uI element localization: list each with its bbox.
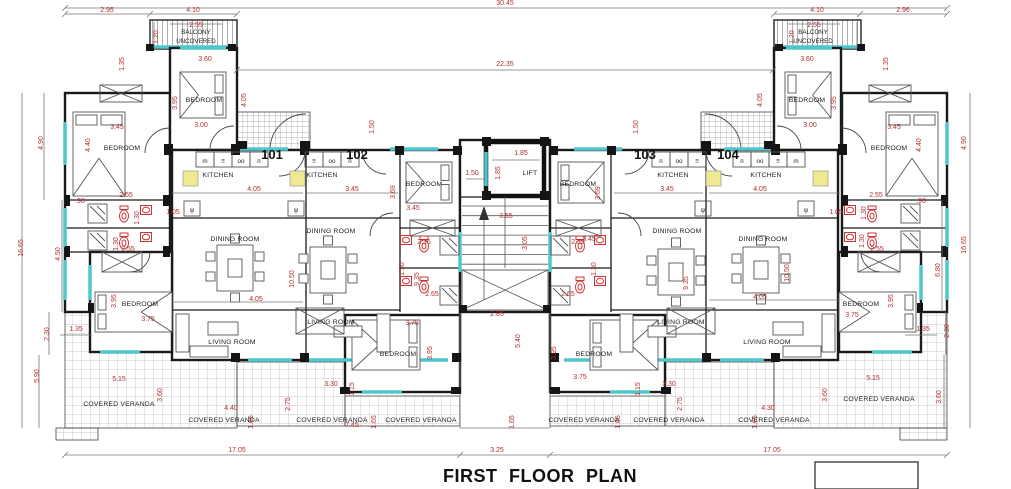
- dimension-label: 2.65: [561, 291, 575, 298]
- unit-number: 103: [634, 147, 656, 162]
- fixture-glyph: ≡: [695, 158, 699, 165]
- fixture-glyph: oo: [237, 158, 245, 165]
- room-label: BEDROOM: [843, 301, 880, 308]
- room-label: LIVING ROOM: [743, 339, 791, 346]
- dimension-label: 5.90: [34, 369, 41, 383]
- dimension-label: 2.35: [417, 239, 431, 246]
- room-label: BEDROOM: [406, 181, 443, 188]
- fixture-glyph: ψ: [294, 207, 299, 214]
- fixture-glyph: п: [659, 158, 662, 165]
- dimension-label: 3.55: [499, 213, 513, 220]
- dimension-label: 10.50: [784, 264, 791, 282]
- dimension-label: 3.75: [141, 316, 155, 323]
- dimension-label: 3.00: [194, 122, 208, 129]
- dimension-label: 3.45: [345, 186, 359, 193]
- room-label: COVERED VERANDA: [843, 396, 915, 403]
- entrance-porch: [237, 112, 310, 150]
- dimension-label: 1.50: [465, 170, 479, 177]
- dimension-label: 1.85: [514, 150, 528, 157]
- dimension-label: 4.05: [247, 186, 261, 193]
- balcony-label: BALCONY: [798, 29, 828, 36]
- dimension-label: 4.05: [249, 296, 263, 303]
- dimension-label: 4.40: [916, 138, 923, 152]
- fixture-glyph: ≡: [221, 158, 225, 165]
- entry-step: [56, 428, 98, 440]
- dimension-label: 3.45: [110, 124, 124, 131]
- dimension-label: 2.55: [870, 246, 884, 253]
- title-block: [815, 462, 918, 489]
- floor-plan-drawing: 30.452.954.102.551.204.102.962.551.2022.…: [0, 0, 1011, 489]
- dimension-label: 1.30: [591, 262, 598, 276]
- dimension-label: 2.30: [44, 327, 51, 341]
- dimension-label: 2.30: [944, 324, 951, 338]
- fixture-glyph: oo: [328, 158, 336, 165]
- unit-number: 104: [717, 147, 739, 162]
- dimension-label: 17.05: [228, 447, 246, 454]
- room-label: COVERED VERANDA: [188, 417, 260, 424]
- room-label: COVERED VERANDA: [83, 401, 155, 408]
- dimension-label: 2.35: [571, 239, 585, 246]
- entrance-porch: [701, 112, 774, 150]
- dimension-label: 1.15: [349, 382, 356, 396]
- balcony-label: UNCOVERED: [176, 38, 216, 45]
- dimension-label: 1.50: [633, 120, 640, 134]
- room-label: COVERED VERANDA: [738, 417, 810, 424]
- dimension-label: 5.40: [515, 334, 522, 348]
- fixture-glyph: m: [793, 158, 798, 165]
- dimension-label: 2.95: [100, 7, 114, 14]
- room-label: KITCHEN: [202, 172, 233, 179]
- dimension-label: 4.90: [961, 136, 968, 150]
- dimension-label: 4.50: [55, 247, 62, 261]
- dimension-label: 16.65: [18, 239, 25, 257]
- dimension-label: 1.65: [509, 415, 516, 429]
- fixture-glyph: ψ: [804, 207, 809, 214]
- center-terrace: [460, 312, 550, 428]
- balcony-label: UNCOVERED: [793, 38, 833, 45]
- dimension-label: 3.69: [595, 186, 602, 200]
- dimension-label: 1.65: [371, 415, 378, 429]
- dimension-label: 17.05: [763, 447, 781, 454]
- dimension-label: 1.30: [861, 206, 868, 220]
- dimension-label: 3.95: [172, 96, 179, 110]
- dimension-label: 2.75: [285, 397, 292, 411]
- room-label: BEDROOM: [576, 351, 613, 358]
- dimension-label: 3.95: [831, 96, 838, 110]
- dimension-label: 1.30: [859, 234, 866, 248]
- dimension-label: 4.05: [753, 294, 767, 301]
- room-label: BEDROOM: [789, 97, 826, 104]
- dimension-label: 3.60: [198, 56, 212, 63]
- room-label: DINING ROOM: [738, 236, 787, 243]
- dimension-label: 2.65: [425, 291, 439, 298]
- dimension-label: 10.50: [289, 270, 296, 288]
- dimension-label: 2.55: [121, 246, 135, 253]
- dimension-label: 3.60: [800, 56, 814, 63]
- dimension-label: 3.25: [490, 447, 504, 454]
- dimension-label: 1.30: [113, 237, 120, 251]
- balcony-labels: BALCONYUNCOVEREDBALCONYUNCOVERED: [176, 29, 833, 45]
- fixture-glyph: п: [348, 158, 351, 165]
- dimension-label: 1.30: [134, 211, 141, 225]
- dimension-label: 2.55: [119, 192, 133, 199]
- dimension-label: 4.30: [761, 405, 775, 412]
- dimension-label: 3.30: [324, 381, 338, 388]
- room-label: BEDROOM: [560, 181, 597, 188]
- dimension-label: 1.15: [635, 382, 642, 396]
- dimension-label: 6.80: [935, 263, 942, 277]
- dimension-label: 3.75: [845, 312, 859, 319]
- room-label: DINING ROOM: [210, 236, 259, 243]
- dimension-label: 3.95: [551, 346, 558, 360]
- dimension-label: 3.45: [660, 186, 674, 193]
- fixture-glyph: oo: [756, 158, 764, 165]
- room-label: LIVING ROOM: [307, 319, 355, 326]
- dimension-label: 1.50: [369, 120, 376, 134]
- dimension-label: 3.69: [390, 185, 397, 199]
- dimension-label: 3.30: [662, 381, 676, 388]
- room-label: COVERED VERANDA: [548, 417, 620, 424]
- dimension-label: 1.05: [829, 209, 843, 216]
- dimension-label: 3.75: [405, 320, 419, 327]
- dimension-label: 4.40: [85, 138, 92, 152]
- room-label: LIVING ROOM: [208, 339, 256, 346]
- dimension-label: 3.60: [936, 390, 943, 404]
- dimension-label: 2.75: [677, 397, 684, 411]
- dimension-label: 4.05: [753, 186, 767, 193]
- room-label: KITCHEN: [306, 172, 337, 179]
- room-label: BEDROOM: [122, 301, 159, 308]
- fixture-glyph: oo: [675, 158, 683, 165]
- room-label: KITCHEN: [750, 172, 781, 179]
- dimension-label: 3.95: [427, 346, 434, 360]
- room-label: BEDROOM: [186, 97, 223, 104]
- room-label: KITCHEN: [657, 172, 688, 179]
- dimension-label: 4.05: [757, 93, 764, 107]
- dimension-label: 2.55: [869, 192, 883, 199]
- dimension-label: 1.85: [495, 166, 502, 180]
- dimension-label: 3.45: [406, 205, 420, 212]
- dimension-label: 2.96: [896, 7, 910, 14]
- fixture-glyph: ≡: [312, 158, 316, 165]
- dimension-label: 4.90: [38, 136, 45, 150]
- room-label: DINING ROOM: [306, 228, 355, 235]
- dimension-label: 3.60: [157, 388, 164, 402]
- dimension-label: 2.85: [490, 311, 504, 318]
- dimension-label: 1.35: [119, 57, 126, 71]
- dimension-label: 1.20: [153, 30, 160, 44]
- dimension-label: 1.35: [69, 326, 83, 333]
- room-label: DINING ROOM: [652, 228, 701, 235]
- dimension-label: 5.15: [866, 375, 880, 382]
- fixture-glyph: п: [257, 158, 260, 165]
- balcony-label: BALCONY: [181, 29, 211, 36]
- dimension-label: 3.95: [111, 294, 118, 308]
- dimension-label: 30.45: [496, 0, 514, 7]
- dimension-label: 3.45: [887, 124, 901, 131]
- dimension-label: 2.55: [189, 22, 203, 29]
- fixture-glyph: ≡: [776, 158, 780, 165]
- dimension-label: 3.05: [522, 236, 529, 250]
- dimension-label: 1.35: [883, 57, 890, 71]
- plan-title: FIRST FLOOR PLAN: [443, 466, 637, 486]
- fixture-glyph: ψ: [190, 207, 195, 214]
- dimension-label: 3.95: [888, 294, 895, 308]
- fixture-glyph: m: [202, 158, 207, 165]
- dimension-label: 9.35: [683, 276, 690, 290]
- entry-step: [900, 428, 947, 440]
- room-label: BEDROOM: [104, 145, 141, 152]
- dimension-label: 1.35: [916, 326, 930, 333]
- dimension-label: .90: [75, 198, 85, 205]
- room-label: BEDROOM: [871, 145, 908, 152]
- room-label: COVERED VERANDA: [296, 417, 368, 424]
- dimension-label: 3.00: [803, 122, 817, 129]
- dimension-label: 4.10: [186, 7, 200, 14]
- dimension-label: 1.30: [399, 262, 406, 276]
- room-label: COVERED VERANDA: [633, 417, 705, 424]
- room-label: BEDROOM: [380, 351, 417, 358]
- room-label: COVERED VERANDA: [385, 417, 457, 424]
- dimension-label: 2.55: [807, 22, 821, 29]
- dimension-label: 3.60: [822, 388, 829, 402]
- dimension-label: 22.35: [496, 61, 514, 68]
- balconies: [150, 20, 861, 49]
- dimension-label: 3.75: [573, 374, 587, 381]
- dimension-label: 9.35: [414, 272, 421, 286]
- dimension-label: 5.15: [112, 376, 126, 383]
- fixture-glyph: ψ: [701, 207, 706, 214]
- room-label: LIFT: [523, 170, 538, 177]
- dimension-label: 4.10: [810, 7, 824, 14]
- dimension-label: 4.05: [241, 93, 248, 107]
- dimension-label: .90: [916, 198, 926, 205]
- dimension-label: 16.65: [961, 236, 968, 254]
- room-label: LIVING ROOM: [657, 319, 705, 326]
- unit-number: 101: [261, 147, 283, 162]
- dimension-label: 4.40: [224, 405, 238, 412]
- dimension-label: 1.05: [166, 209, 180, 216]
- fixture-glyph: п: [740, 158, 743, 165]
